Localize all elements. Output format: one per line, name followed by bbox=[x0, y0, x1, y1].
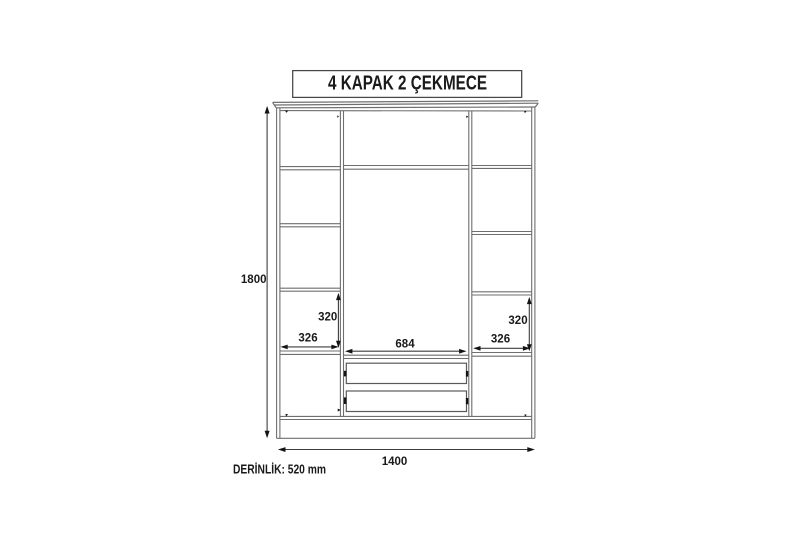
svg-text:684: 684 bbox=[395, 338, 415, 350]
svg-text:DERİNLİK: 520 mm: DERİNLİK: 520 mm bbox=[233, 462, 326, 477]
svg-text:326: 326 bbox=[298, 332, 317, 344]
svg-text:320: 320 bbox=[318, 312, 337, 324]
svg-text:4 KAPAK 2 ÇEKMECE: 4 KAPAK 2 ÇEKMECE bbox=[328, 73, 487, 95]
svg-text:1800: 1800 bbox=[241, 274, 267, 286]
svg-text:326: 326 bbox=[491, 334, 510, 346]
svg-text:1400: 1400 bbox=[382, 456, 408, 468]
svg-text:320: 320 bbox=[508, 315, 527, 327]
